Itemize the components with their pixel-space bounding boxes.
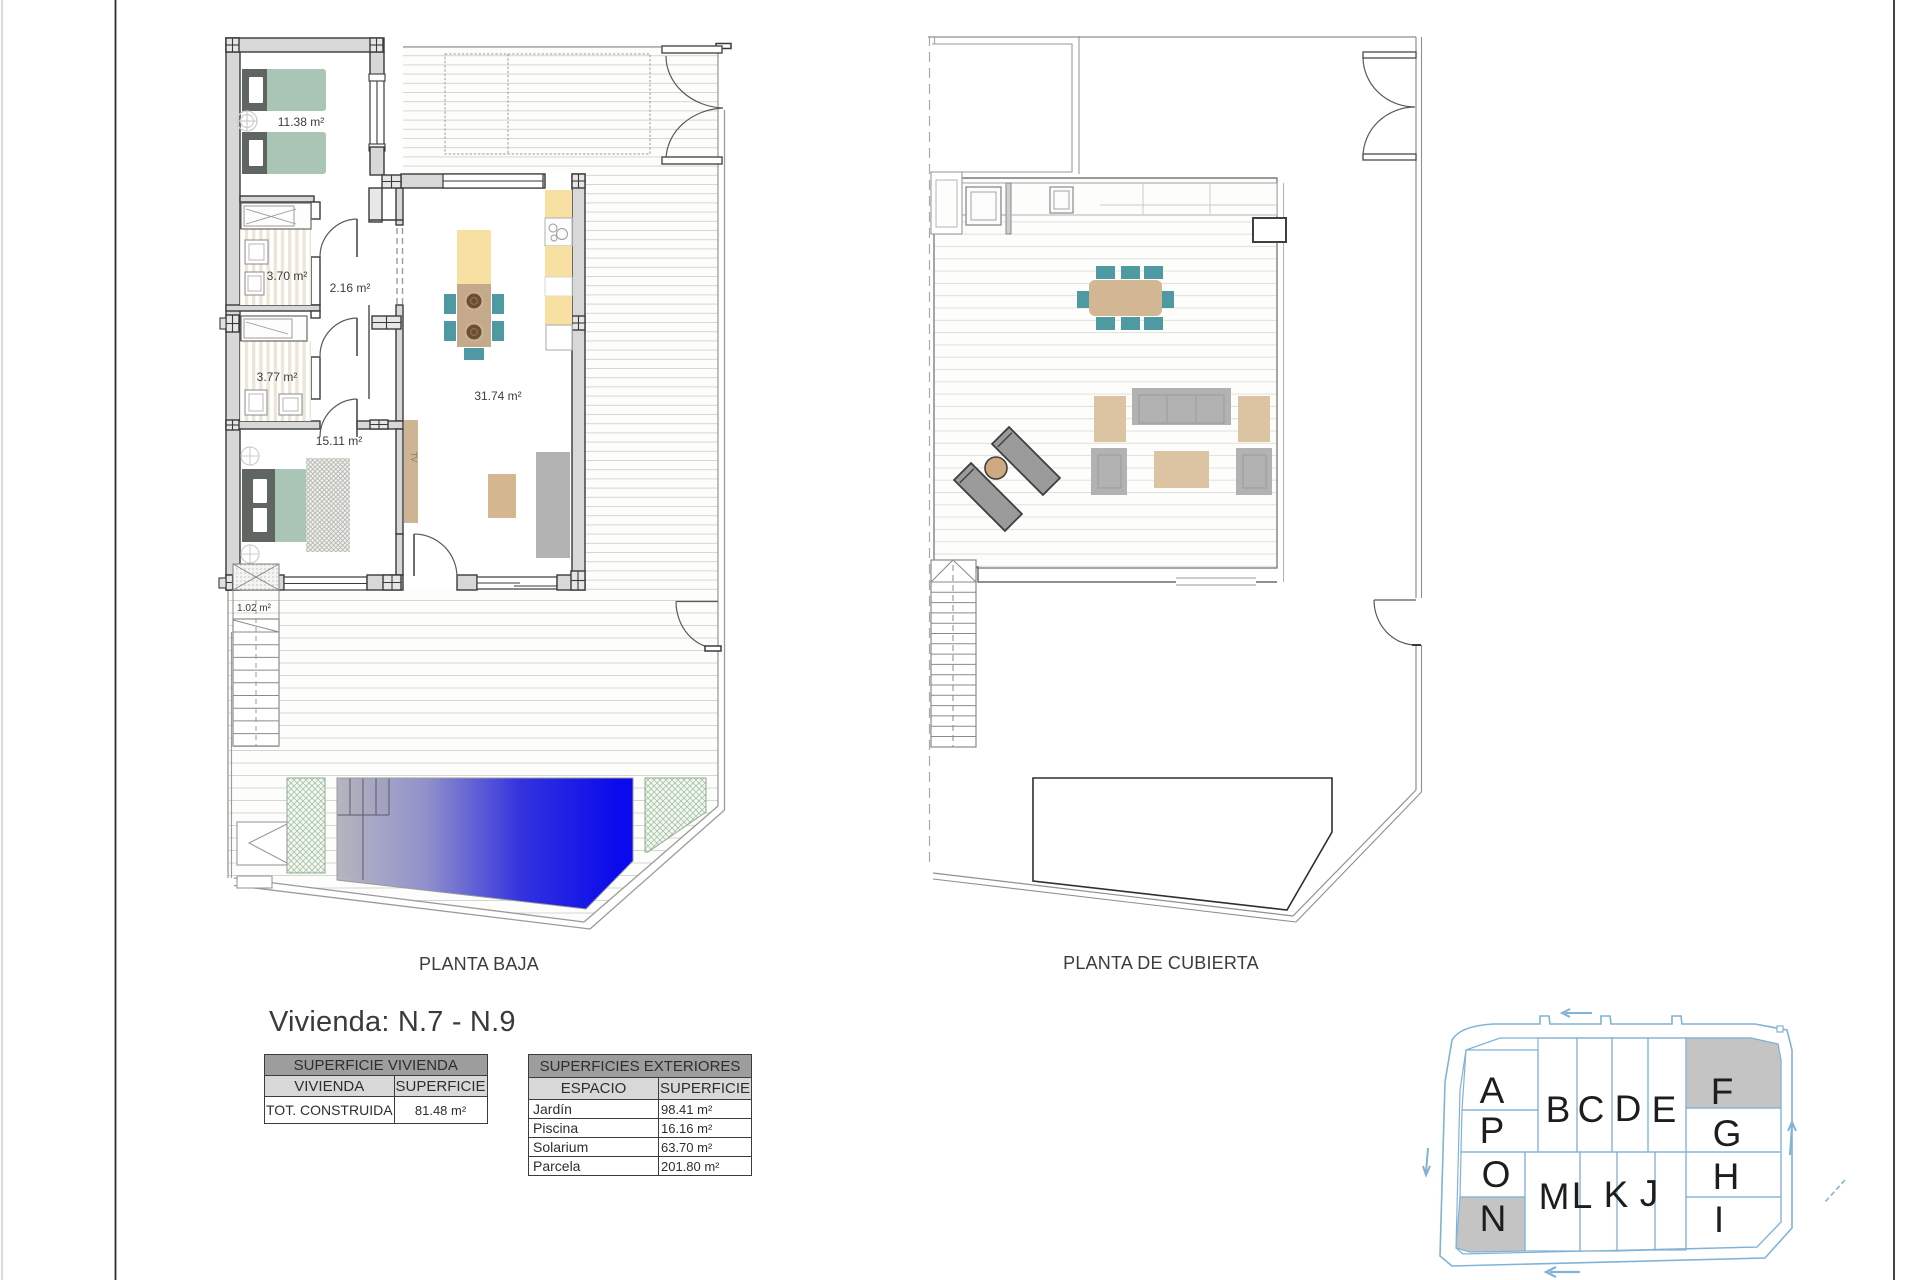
svg-text:1.02 m²: 1.02 m² <box>237 603 272 614</box>
svg-text:G: G <box>1713 1113 1742 1154</box>
svg-text:H: H <box>1713 1156 1740 1197</box>
svg-text:TV: TV <box>409 452 418 463</box>
svg-text:2.16 m²: 2.16 m² <box>330 281 371 295</box>
svg-text:PLANTA BAJA: PLANTA BAJA <box>419 954 539 974</box>
svg-text:P: P <box>1480 1110 1505 1151</box>
svg-text:K: K <box>1604 1174 1629 1215</box>
svg-text:D: D <box>1615 1088 1642 1129</box>
svg-text:N: N <box>1480 1198 1507 1239</box>
svg-text:E: E <box>1652 1089 1677 1130</box>
svg-text:PLANTA DE CUBIERTA: PLANTA DE CUBIERTA <box>1063 953 1259 973</box>
svg-text:J: J <box>1640 1173 1659 1214</box>
svg-text:B: B <box>1546 1089 1571 1130</box>
svg-text:3.70 m²: 3.70 m² <box>267 269 308 283</box>
svg-text:31.74 m²: 31.74 m² <box>474 389 521 403</box>
svg-text:O: O <box>1482 1154 1511 1195</box>
svg-text:C: C <box>1578 1089 1605 1130</box>
svg-text:15.11 m²: 15.11 m² <box>316 434 362 448</box>
svg-text:11.38 m²: 11.38 m² <box>278 115 324 129</box>
svg-text:L: L <box>1572 1175 1593 1216</box>
svg-text:I: I <box>1714 1199 1724 1240</box>
svg-text:A: A <box>1480 1070 1505 1111</box>
svg-text:F: F <box>1711 1071 1734 1112</box>
svg-text:3.77 m²: 3.77 m² <box>257 370 298 384</box>
svg-text:M: M <box>1539 1176 1570 1217</box>
